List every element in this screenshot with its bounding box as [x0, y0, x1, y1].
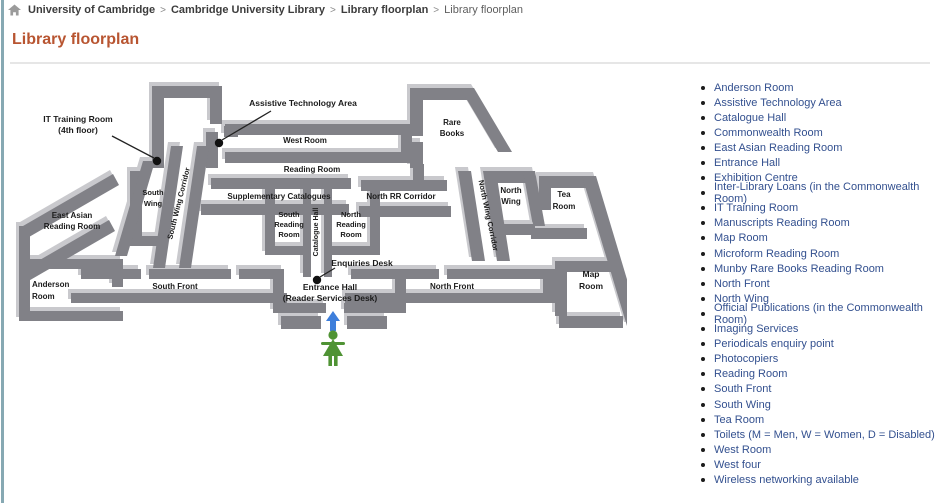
room-link[interactable]: West four — [714, 459, 761, 471]
bullet-icon — [701, 146, 705, 150]
breadcrumb-link-library[interactable]: Cambridge University Library — [171, 4, 325, 16]
list-item: Wireless networking available — [701, 472, 940, 487]
list-item: Tea Room — [701, 412, 940, 427]
list-item: Map Room — [701, 231, 940, 246]
bullet-icon — [701, 161, 705, 165]
bullet-icon — [701, 372, 705, 376]
bullet-icon — [701, 342, 705, 346]
breadcrumb-link-floorplan[interactable]: Library floorplan — [341, 4, 428, 16]
list-item: Official Publications (in the Commonweal… — [701, 306, 940, 321]
bullet-icon — [701, 221, 705, 225]
bullet-icon — [701, 463, 705, 467]
room-link[interactable]: Microform Reading Room — [714, 248, 839, 260]
floorplan-image: IT Training Room (4th floor) Assistive T… — [15, 76, 627, 374]
label-south-front: South Front — [152, 282, 198, 291]
label-anderson: Anderson — [32, 280, 69, 289]
room-link[interactable]: Commonwealth Room — [714, 127, 823, 139]
bullet-icon — [701, 418, 705, 422]
list-item: Munby Rare Books Reading Room — [701, 261, 940, 276]
svg-text:Room: Room — [278, 230, 300, 239]
list-item: Catalogue Hall — [701, 110, 940, 125]
list-item: Manuscripts Reading Room — [701, 216, 940, 231]
label-north-reading: North — [341, 210, 361, 219]
room-link[interactable]: Tea Room — [714, 414, 764, 426]
label-supplementary: Supplementary Catalogues — [227, 192, 331, 201]
list-item: West Room — [701, 442, 940, 457]
bullet-icon — [701, 131, 705, 135]
room-link[interactable]: Catalogue Hall — [714, 112, 786, 124]
svg-text:Reading: Reading — [336, 220, 366, 229]
room-link[interactable]: Reading Room — [714, 368, 787, 380]
bullet-icon — [701, 116, 705, 120]
list-item: North Front — [701, 276, 940, 291]
list-item: West four — [701, 457, 940, 472]
bullet-icon — [701, 252, 705, 256]
room-link[interactable]: Manuscripts Reading Room — [714, 217, 850, 229]
room-link[interactable]: North Front — [714, 278, 770, 290]
bullet-icon — [701, 357, 705, 361]
svg-text:Wing: Wing — [501, 197, 521, 206]
svg-text:(Reader Services Desk): (Reader Services Desk) — [283, 293, 378, 303]
page-title: Library floorplan — [12, 31, 139, 49]
label-entrance-hall: Entrance Hall — [303, 282, 357, 292]
breadcrumb-current: Library floorplan — [444, 4, 523, 16]
room-link[interactable]: Anderson Room — [714, 82, 794, 94]
list-item: South Front — [701, 382, 940, 397]
bullet-icon — [701, 297, 705, 301]
list-item: East Asian Reading Room — [701, 140, 940, 155]
bullet-icon — [701, 206, 705, 210]
label-assistive: Assistive Technology Area — [249, 98, 357, 108]
list-item: Microform Reading Room — [701, 246, 940, 261]
marker-dot-icon — [215, 139, 223, 147]
bullet-icon — [701, 236, 705, 240]
label-east-asian: East Asian — [52, 211, 93, 220]
svg-text:(4th floor): (4th floor) — [58, 125, 98, 135]
bullet-icon — [701, 403, 705, 407]
bullet-icon — [701, 191, 705, 195]
svg-text:Books: Books — [440, 129, 465, 138]
marker-dot-icon — [153, 157, 161, 165]
svg-text:Room: Room — [32, 292, 55, 301]
room-link[interactable]: Photocopiers — [714, 353, 778, 365]
breadcrumb-link-university[interactable]: University of Cambridge — [28, 4, 155, 16]
room-link[interactable]: Wireless networking available — [714, 474, 859, 486]
label-south-reading: South — [278, 210, 300, 219]
divider — [10, 62, 930, 64]
bullet-icon — [701, 312, 705, 316]
list-item: Inter-Library Loans (in the Commonwealth… — [701, 186, 940, 201]
room-link[interactable]: Munby Rare Books Reading Room — [714, 263, 884, 275]
breadcrumb-separator: > — [428, 5, 444, 16]
bullet-icon — [701, 478, 705, 482]
room-link[interactable]: Periodicals enquiry point — [714, 338, 834, 350]
room-link[interactable]: Map Room — [714, 232, 768, 244]
bullet-icon — [701, 267, 705, 271]
label-catalogue-hall: Catalogue Hall — [313, 208, 320, 257]
list-item: Anderson Room — [701, 80, 940, 95]
list-item: Toilets (M = Men, W = Women, D = Disable… — [701, 427, 940, 442]
bullet-icon — [701, 387, 705, 391]
list-item: Photocopiers — [701, 352, 940, 367]
room-link[interactable]: Entrance Hall — [714, 157, 780, 169]
person-icon — [321, 330, 345, 366]
bullet-icon — [701, 448, 705, 452]
label-west-room: West Room — [283, 136, 327, 145]
svg-text:Room: Room — [340, 230, 362, 239]
room-link[interactable]: Assistive Technology Area — [714, 97, 842, 109]
svg-text:Reading Room: Reading Room — [44, 222, 100, 231]
label-north-front: North Front — [430, 282, 474, 291]
room-link[interactable]: South Front — [714, 383, 771, 395]
room-link[interactable]: Imaging Services — [714, 323, 798, 335]
list-item: Entrance Hall — [701, 155, 940, 170]
bullet-icon — [701, 101, 705, 105]
breadcrumb-separator: > — [325, 5, 341, 16]
bullet-icon — [701, 327, 705, 331]
bullet-icon — [701, 176, 705, 180]
room-link-list: Anderson Room Assistive Technology Area … — [701, 80, 940, 488]
label-rare-books: Rare — [443, 118, 461, 127]
bullet-icon — [701, 282, 705, 286]
room-link[interactable]: Toilets (M = Men, W = Women, D = Disable… — [714, 429, 935, 441]
label-map-room: Map — [583, 269, 600, 279]
label-north-wing: North — [500, 186, 521, 195]
label-it-training: IT Training Room — [43, 114, 113, 124]
entrance-arrow-icon — [326, 311, 340, 331]
room-link[interactable]: East Asian Reading Room — [714, 142, 842, 154]
bullet-icon — [701, 86, 705, 90]
label-south-wing: South — [142, 188, 164, 197]
svg-text:Wing: Wing — [144, 199, 163, 208]
svg-text:Room: Room — [579, 281, 604, 291]
svg-text:Reading: Reading — [274, 220, 304, 229]
list-item: Periodicals enquiry point — [701, 337, 940, 352]
floorplan-svg: IT Training Room (4th floor) Assistive T… — [15, 76, 627, 374]
svg-text:Room: Room — [553, 202, 576, 211]
list-item: Commonwealth Room — [701, 125, 940, 140]
label-reading-room: Reading Room — [284, 165, 340, 174]
room-link[interactable]: South Wing — [714, 399, 771, 411]
home-icon[interactable] — [8, 4, 21, 16]
room-link[interactable]: West Room — [714, 444, 771, 456]
room-link[interactable]: IT Training Room — [714, 202, 798, 214]
label-enquiries: Enquiries Desk — [331, 258, 393, 268]
label-tea-room: Tea — [557, 190, 571, 199]
list-item: Assistive Technology Area — [701, 95, 940, 110]
breadcrumb-separator: > — [155, 5, 171, 16]
breadcrumb: University of Cambridge > Cambridge Univ… — [8, 3, 523, 17]
label-north-rr: North RR Corridor — [366, 192, 435, 201]
list-item: South Wing — [701, 397, 940, 412]
left-edge-rule — [1, 0, 4, 503]
list-item: Reading Room — [701, 367, 940, 382]
bullet-icon — [701, 433, 705, 437]
